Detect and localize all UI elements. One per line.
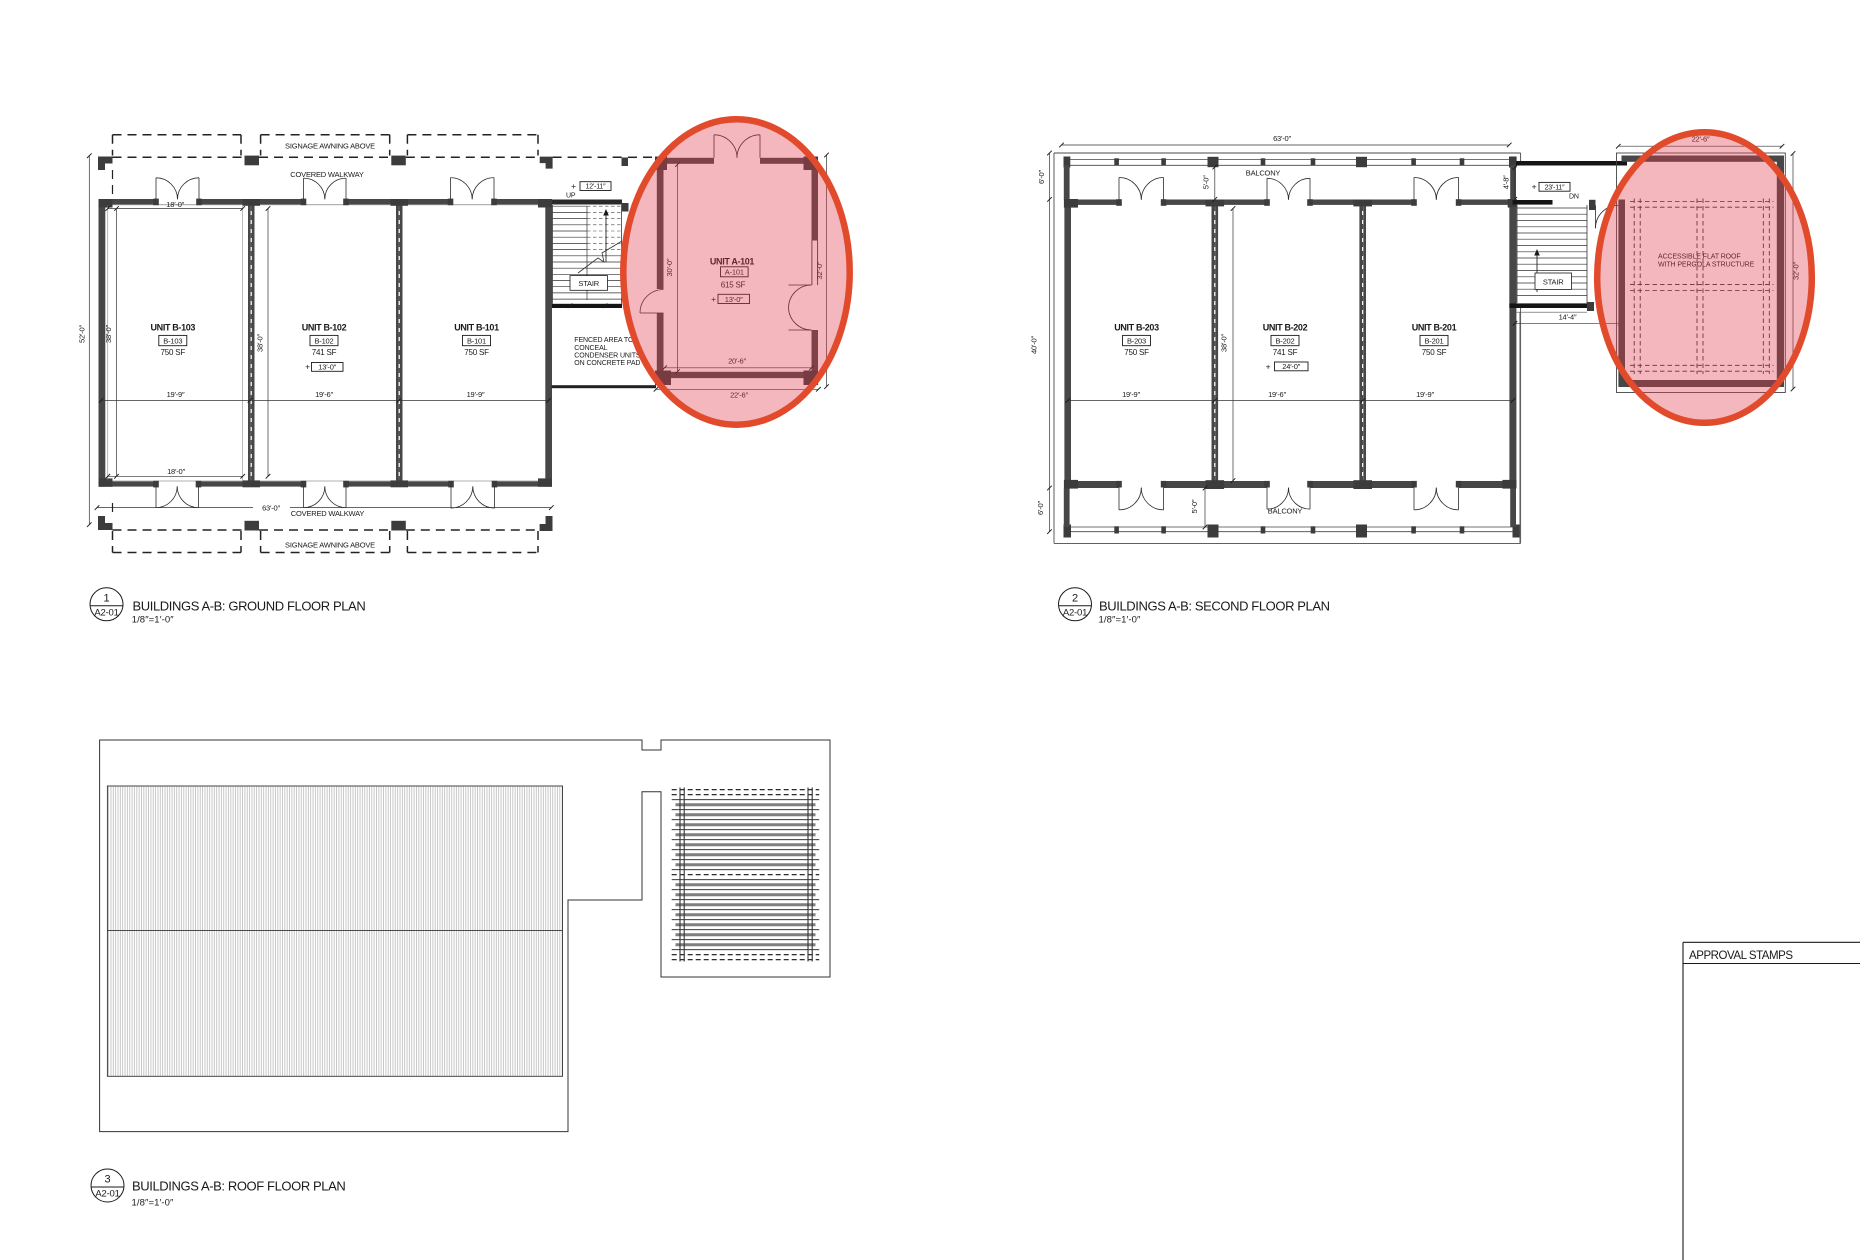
- svg-text:3: 3: [105, 1174, 111, 1186]
- svg-text:CONCEAL: CONCEAL: [574, 345, 607, 352]
- svg-text:63′-0″: 63′-0″: [262, 504, 280, 513]
- svg-text:+: +: [571, 181, 576, 191]
- svg-text:SIGNAGE AWNING ABOVE: SIGNAGE AWNING ABOVE: [285, 541, 375, 550]
- svg-text:UP: UP: [566, 193, 576, 200]
- svg-text:19′-6″: 19′-6″: [315, 390, 333, 399]
- svg-text:BUILDINGS A-B: SECOND FLOOR PL: BUILDINGS A-B: SECOND FLOOR PLAN: [1099, 599, 1330, 614]
- svg-text:6′-0″: 6′-0″: [1036, 501, 1045, 515]
- svg-text:UNIT B-203: UNIT B-203: [1114, 323, 1159, 333]
- svg-text:18′-0″: 18′-0″: [166, 200, 184, 209]
- svg-text:BALCONY: BALCONY: [1268, 507, 1303, 516]
- svg-text:52′-0″: 52′-0″: [77, 325, 86, 343]
- svg-text:19′-6″: 19′-6″: [1268, 390, 1286, 399]
- svg-text:ON CONCRETE PAD: ON CONCRETE PAD: [574, 360, 640, 367]
- svg-text:38′-0″: 38′-0″: [104, 325, 113, 343]
- svg-text:B-102: B-102: [314, 336, 333, 345]
- svg-text:18′-0″: 18′-0″: [167, 467, 185, 476]
- svg-text:BUILDINGS A-B: GROUND FLOOR PL: BUILDINGS A-B: GROUND FLOOR PLAN: [133, 599, 366, 614]
- svg-text:COVERED WALKWAY: COVERED WALKWAY: [291, 509, 365, 518]
- svg-text:1: 1: [104, 593, 110, 605]
- svg-text:19′-9″: 19′-9″: [167, 390, 185, 399]
- svg-text:1/8″=1′-0″: 1/8″=1′-0″: [132, 615, 175, 626]
- svg-text:14′-4″: 14′-4″: [1559, 312, 1577, 321]
- svg-text:1/8″=1′-0″: 1/8″=1′-0″: [1099, 615, 1142, 626]
- svg-text:40′-0″: 40′-0″: [1030, 336, 1039, 354]
- svg-text:UNIT B-202: UNIT B-202: [1263, 323, 1308, 333]
- svg-text:SIGNAGE AWNING ABOVE: SIGNAGE AWNING ABOVE: [285, 142, 375, 151]
- svg-text:63′-0″: 63′-0″: [1273, 134, 1291, 143]
- svg-text:A2-01: A2-01: [95, 1189, 119, 1200]
- svg-text:12′-11″: 12′-11″: [586, 184, 606, 191]
- svg-text:B-103: B-103: [163, 336, 182, 345]
- svg-text:2: 2: [1072, 593, 1078, 605]
- svg-text:750 SF: 750 SF: [161, 348, 186, 357]
- svg-text:4′-8″: 4′-8″: [1502, 175, 1511, 189]
- svg-text:STAIR: STAIR: [1543, 278, 1564, 287]
- svg-text:UNIT B-201: UNIT B-201: [1412, 323, 1457, 333]
- svg-text:750 SF: 750 SF: [1124, 348, 1149, 357]
- svg-text:UNIT B-101: UNIT B-101: [454, 323, 499, 333]
- svg-text:UNIT B-103: UNIT B-103: [151, 323, 196, 333]
- svg-text:DN: DN: [1569, 194, 1579, 201]
- svg-text:5′-0″: 5′-0″: [1202, 175, 1211, 189]
- svg-text:BALCONY: BALCONY: [1246, 169, 1281, 178]
- svg-text:STAIR: STAIR: [578, 279, 599, 288]
- svg-text:6′-0″: 6′-0″: [1037, 170, 1046, 184]
- svg-text:13′-0″: 13′-0″: [318, 363, 336, 372]
- svg-text:BUILDINGS A-B: ROOF FLOOR PLAN: BUILDINGS A-B: ROOF FLOOR PLAN: [132, 1179, 345, 1194]
- svg-text:24′-0″: 24′-0″: [1282, 362, 1300, 371]
- svg-text:FENCED AREA TO: FENCED AREA TO: [574, 337, 634, 344]
- svg-text:COVERED WALKWAY: COVERED WALKWAY: [290, 170, 364, 179]
- svg-text:19′-9″: 19′-9″: [1416, 390, 1434, 399]
- svg-text:750 SF: 750 SF: [1422, 348, 1447, 357]
- svg-text:+: +: [305, 362, 310, 372]
- svg-text:UNIT B-102: UNIT B-102: [302, 323, 347, 333]
- svg-text:+: +: [1266, 362, 1271, 372]
- svg-text:APPROVAL STAMPS: APPROVAL STAMPS: [1689, 950, 1793, 962]
- svg-text:741 SF: 741 SF: [1273, 348, 1298, 357]
- svg-text:38′-0″: 38′-0″: [1220, 334, 1229, 352]
- svg-text:1/8″=1′-0″: 1/8″=1′-0″: [132, 1198, 175, 1209]
- svg-text:B-203: B-203: [1127, 336, 1146, 345]
- svg-text:B-202: B-202: [1275, 336, 1294, 345]
- svg-text:A2-01: A2-01: [94, 608, 118, 619]
- svg-text:CONDENSER UNITS: CONDENSER UNITS: [574, 352, 641, 359]
- svg-text:23′-11″: 23′-11″: [1545, 184, 1565, 191]
- svg-text:38′-0″: 38′-0″: [256, 334, 265, 352]
- svg-text:A2-01: A2-01: [1063, 608, 1087, 619]
- svg-text:750 SF: 750 SF: [464, 348, 489, 357]
- svg-text:B-101: B-101: [467, 336, 486, 345]
- svg-text:19′-9″: 19′-9″: [1122, 390, 1140, 399]
- svg-text:19′-9″: 19′-9″: [467, 390, 485, 399]
- svg-text:741 SF: 741 SF: [312, 348, 337, 357]
- svg-text:B-201: B-201: [1424, 336, 1443, 345]
- svg-text:5′-0″: 5′-0″: [1190, 499, 1199, 513]
- svg-text:+: +: [1532, 182, 1537, 192]
